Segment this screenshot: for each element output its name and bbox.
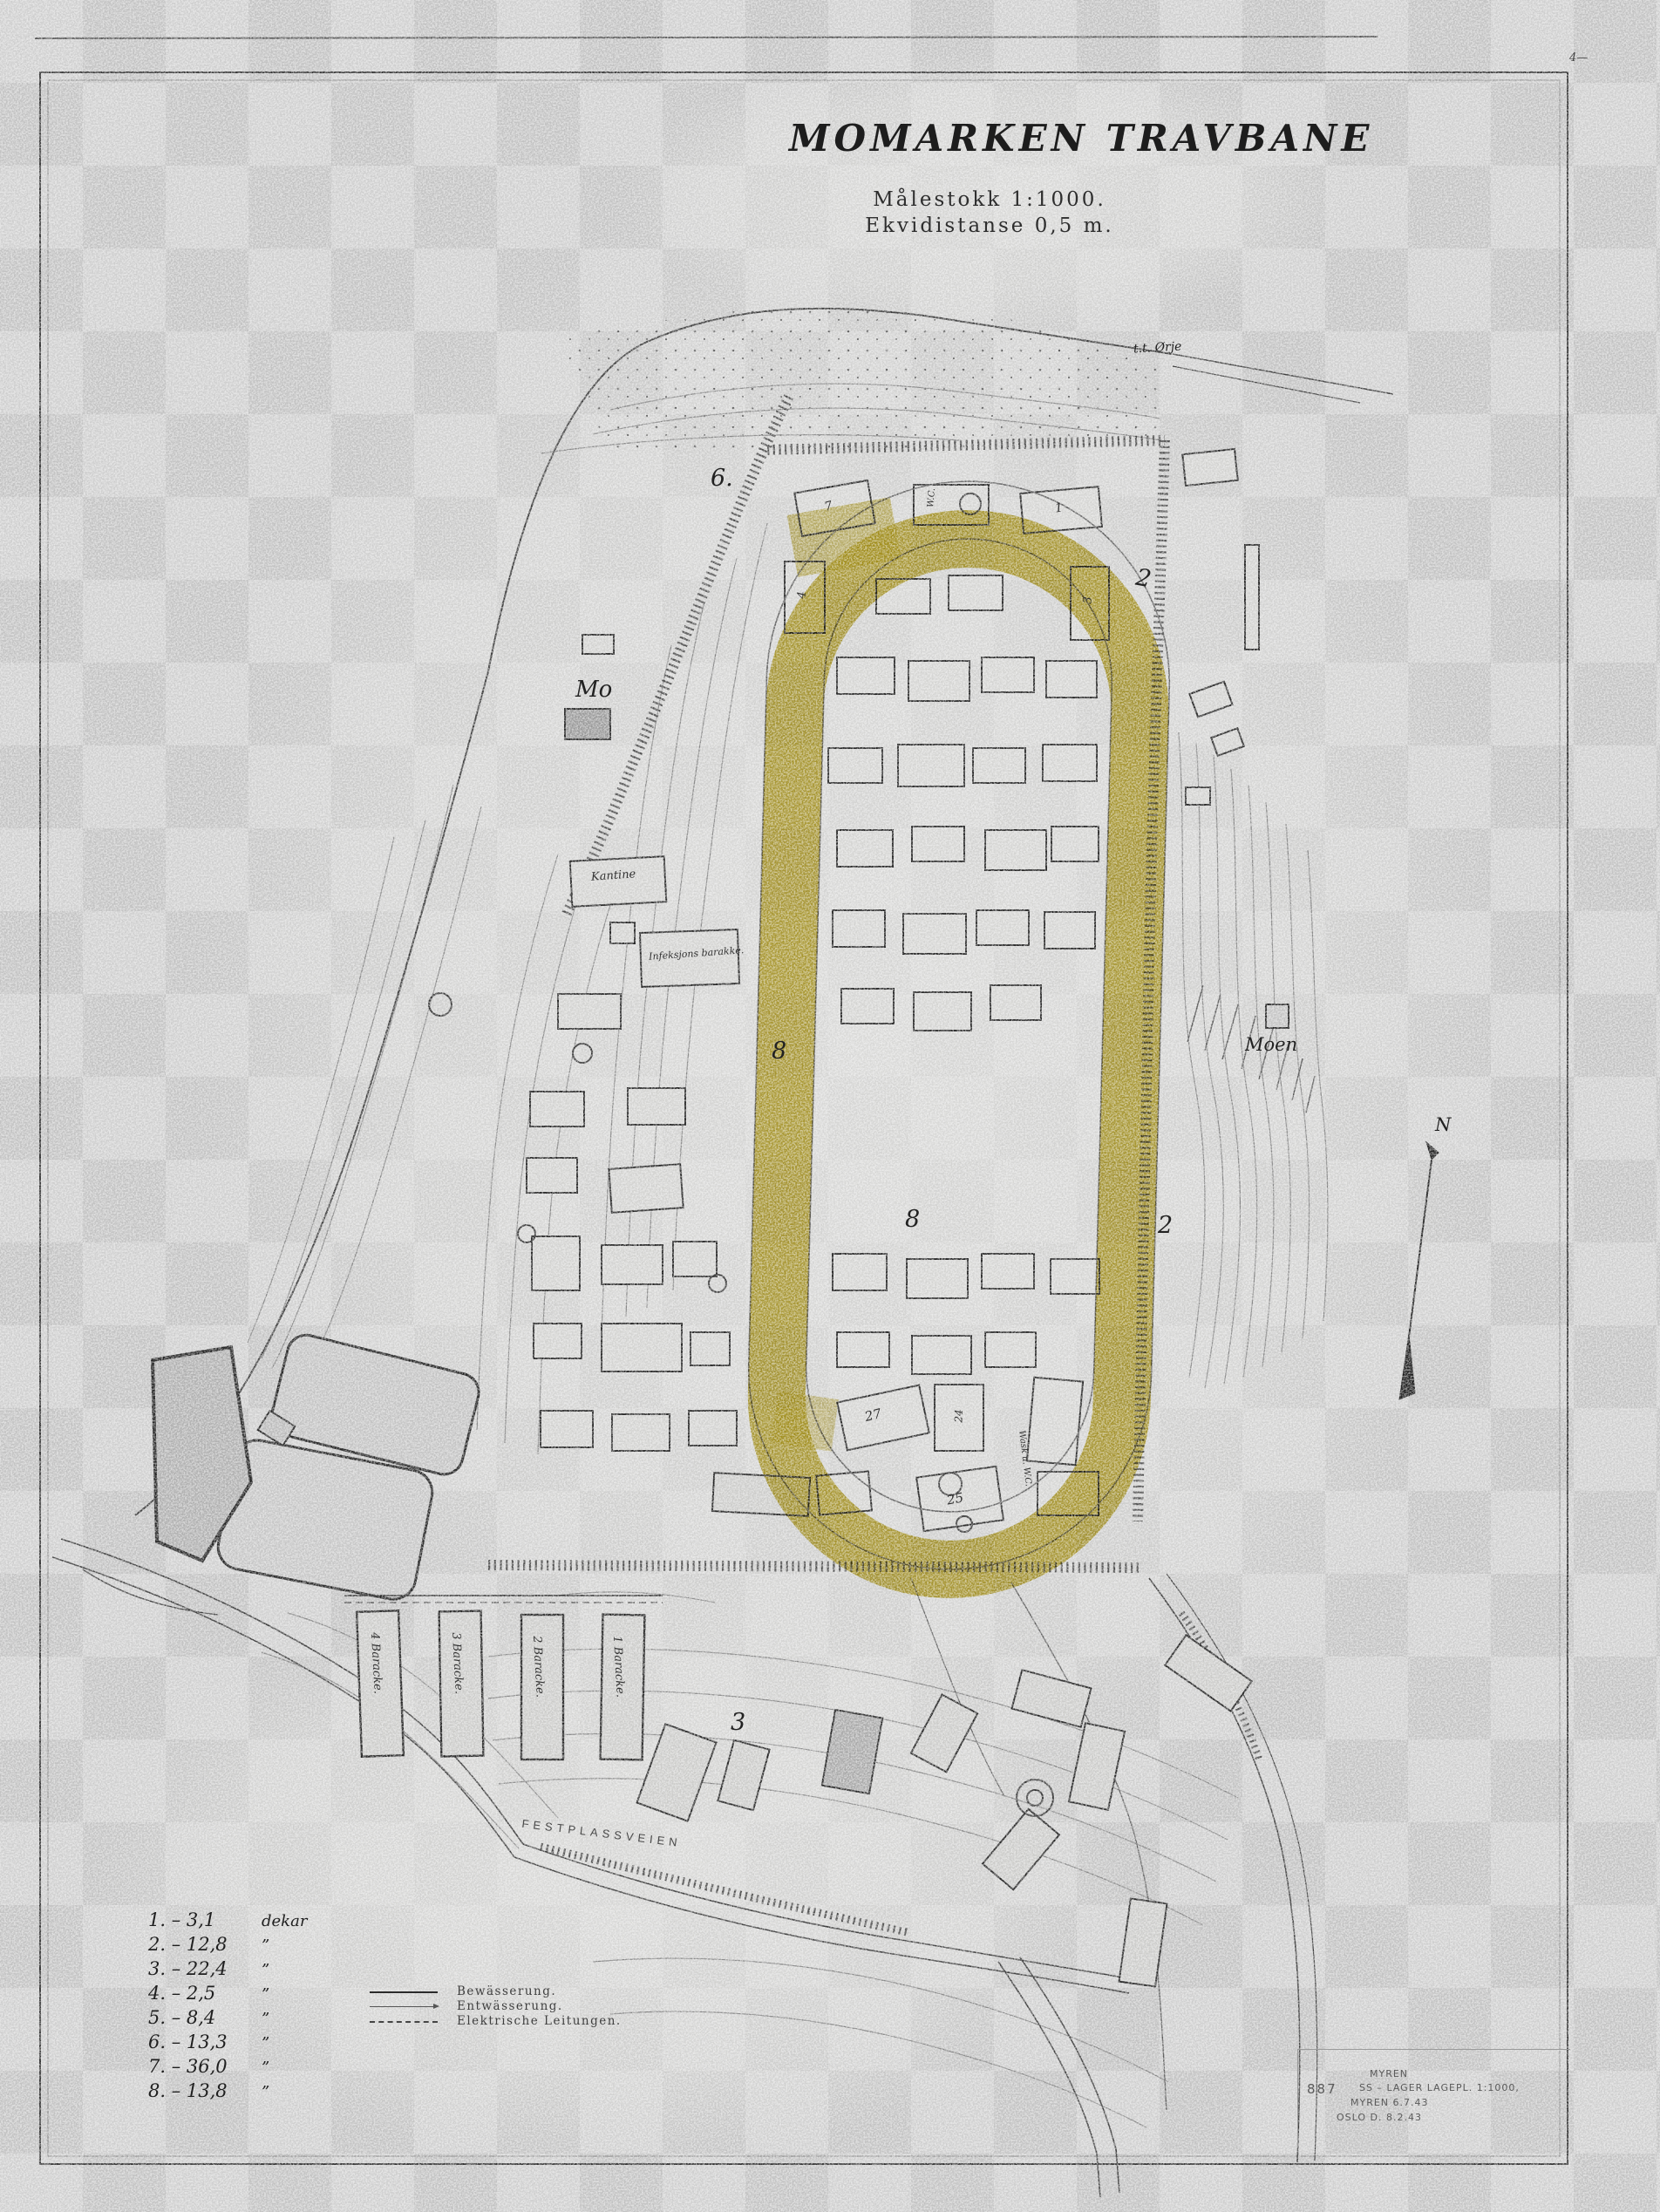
barracks-label-1: 1 Baracke. xyxy=(611,1636,626,1698)
area-legend-row: 6. – 13,3 ” xyxy=(148,2033,307,2058)
legend-line-arrow xyxy=(370,2006,438,2007)
line-legend-row: Entwässerung. xyxy=(370,1999,622,2014)
place-label-moen: Moen xyxy=(1245,1036,1297,1054)
building-label-25: 25 xyxy=(946,1491,964,1507)
map-linework xyxy=(0,0,1660,2212)
annotation-line2: SS – LAGER LAGEPL. 1:1000, xyxy=(1359,2083,1520,2093)
line-legend-row: Bewässerung. xyxy=(370,1984,622,1999)
area-legend-row: 7. – 36,0 ” xyxy=(148,2058,307,2082)
building-label-1: 1 xyxy=(1054,501,1064,514)
area-legend-label: 1. – 3,1 xyxy=(148,1911,262,1930)
legend-line-solid xyxy=(370,1991,438,1993)
annotation-line3: MYREN 6.7.43 xyxy=(1350,2098,1429,2107)
line-legend: Bewässerung. Entwässerung. Elektrische L… xyxy=(370,1984,622,2029)
legend-line-label: Bewässerung. xyxy=(457,1986,556,1998)
scan-grain xyxy=(0,0,1660,2212)
building-label-27: 27 xyxy=(863,1407,882,1424)
annotation-block: 887 MYREN SS – LAGER LAGEPL. 1:1000, MYR… xyxy=(1297,2049,1570,2147)
scale-text: Målestokk 1:1000. xyxy=(841,190,1138,210)
area-number-6: 6. xyxy=(711,466,733,490)
annotation-number: 887 xyxy=(1307,2083,1337,2096)
area-number-2-right: 2 xyxy=(1158,1214,1173,1237)
building-label-kantine: Kantine xyxy=(591,868,636,883)
area-legend-row: 8. – 13,8 ” xyxy=(148,2082,307,2107)
area-legend: 1. – 3,1 dekar 2. – 12,8 ” 3. – 22,4 ” 4… xyxy=(148,1911,307,2107)
equidistance-text: Ekvidistanse 0,5 m. xyxy=(841,216,1138,236)
area-legend-row: 2. – 12,8 ” xyxy=(148,1936,307,1960)
map-title: MOMARKEN TRAVBANE xyxy=(789,120,1190,157)
line-legend-row: Elektrische Leitungen. xyxy=(370,2014,622,2029)
barracks-label-3: 3 Baracke. xyxy=(450,1632,465,1694)
scanned-map-sheet: MOMARKEN TRAVBANE Målestokk 1:1000. Ekvi… xyxy=(0,0,1660,2212)
road-label-orje: t.t. Ørje xyxy=(1133,341,1182,356)
north-letter: N xyxy=(1435,1116,1451,1134)
legend-line-dashed xyxy=(370,2021,438,2023)
area-number-3: 3 xyxy=(731,1711,745,1734)
annotation-line1: MYREN xyxy=(1370,2069,1408,2079)
corner-mark: 4— xyxy=(1569,52,1588,64)
building-label-wc: W.C. xyxy=(927,488,937,508)
area-number-8-left: 8 xyxy=(772,1039,786,1063)
area-legend-row: 5. – 8,4 ” xyxy=(148,2009,307,2033)
area-legend-unit: dekar xyxy=(262,1914,307,1930)
barracks-label-4: 4 Baracke. xyxy=(369,1632,384,1694)
place-label-mo: Mo xyxy=(575,678,612,701)
building-label-3: 3 xyxy=(1082,596,1094,604)
area-legend-row: 3. – 22,4 ” xyxy=(148,1960,307,1984)
building-label-24: 24 xyxy=(953,1409,964,1423)
building-label-4: 4 xyxy=(796,591,808,599)
area-legend-row: 1. – 3,1 dekar xyxy=(148,1911,307,1936)
barracks-label-2: 2 Baracke. xyxy=(531,1636,546,1698)
area-number-8-mid: 8 xyxy=(905,1208,920,1231)
area-legend-row: 4. – 2,5 ” xyxy=(148,1984,307,2009)
annotation-line4: OSLO D. 8.2.43 xyxy=(1337,2113,1422,2122)
